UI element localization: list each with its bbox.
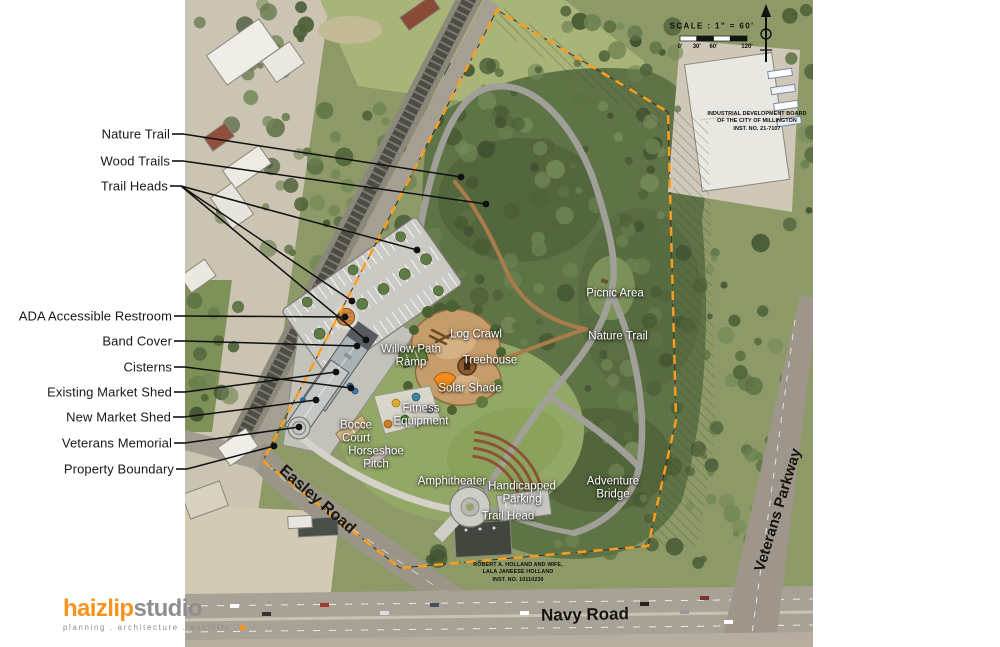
studio-logo-wordmark: haizlipstudio	[63, 597, 245, 621]
parcel-note-holland-parcel: ROBERT A. HOLLAND AND WIFE,LALA JANEESE …	[473, 562, 562, 584]
road-label-navy-road: Navy Road	[541, 604, 629, 626]
callout-label-ada-accessible-restroom: ADA Accessible Restroom	[19, 309, 172, 324]
map-label-trail-head: Trail Head	[482, 511, 535, 524]
studio-logo: haizlipstudio planning . architecture . …	[63, 597, 245, 632]
map-label-nature-trail-map: Nature Trail	[588, 331, 647, 344]
scale-tick-2: 60'	[709, 44, 717, 50]
map-label-willow-path-ramp: Willow PathRamp	[381, 343, 441, 368]
callout-label-trail-heads: Trail Heads	[101, 179, 168, 194]
scale-title: SCALE : 1" = 60'	[670, 22, 755, 31]
callout-label-existing-market-shed: Existing Market Shed	[47, 385, 172, 400]
callout-label-nature-trail: Nature Trail	[102, 127, 170, 142]
callout-label-veterans-memorial: Veterans Memorial	[62, 436, 172, 451]
map-label-picnic-area: Picnic Area	[586, 288, 644, 301]
map-label-bocce-court: BocceCourt	[340, 419, 372, 444]
studio-logo-tagline: planning . architecture . exhibits .	[63, 623, 245, 632]
aerial-map	[0, 0, 1000, 647]
map-label-log-crawl: Log Crawl	[450, 329, 502, 342]
map-label-amphitheater: Amphitheater	[418, 476, 486, 489]
scale-bar	[680, 36, 747, 41]
map-label-handicapped-parking: HandicappedParking	[488, 480, 556, 505]
callout-label-new-market-shed: New Market Shed	[66, 410, 171, 425]
map-label-fitness-equipment: FitnessEquipment	[394, 402, 449, 427]
site-plan-page: Nature TrailWood TrailsTrail HeadsADA Ac…	[0, 0, 1000, 647]
logo-primary-text: haizlip	[63, 595, 133, 622]
parcel-note-industrial-development-board: INDUSTRIAL DEVELOPMENT BOARDOF THE CITY …	[707, 111, 806, 133]
map-label-treehouse: Treehouse	[463, 355, 518, 368]
scale-tick-1: 30'	[693, 44, 701, 50]
callout-label-wood-trails: Wood Trails	[101, 154, 171, 169]
scale-tick-0: 0'	[678, 44, 683, 50]
callout-label-band-cover: Band Cover	[102, 334, 172, 349]
callout-label-cisterns: Cisterns	[124, 360, 172, 375]
map-label-horseshoe-pitch: HorseshoePitch	[348, 445, 404, 470]
map-label-solar-shade: Solar Shade	[438, 383, 501, 396]
callout-label-property-boundary: Property Boundary	[64, 462, 174, 477]
logo-orange-square	[240, 625, 245, 630]
logo-secondary-text: studio	[133, 595, 201, 622]
map-label-adventure-bridge: AdventureBridge	[587, 475, 639, 500]
scale-tick-3: 120'	[741, 44, 752, 50]
